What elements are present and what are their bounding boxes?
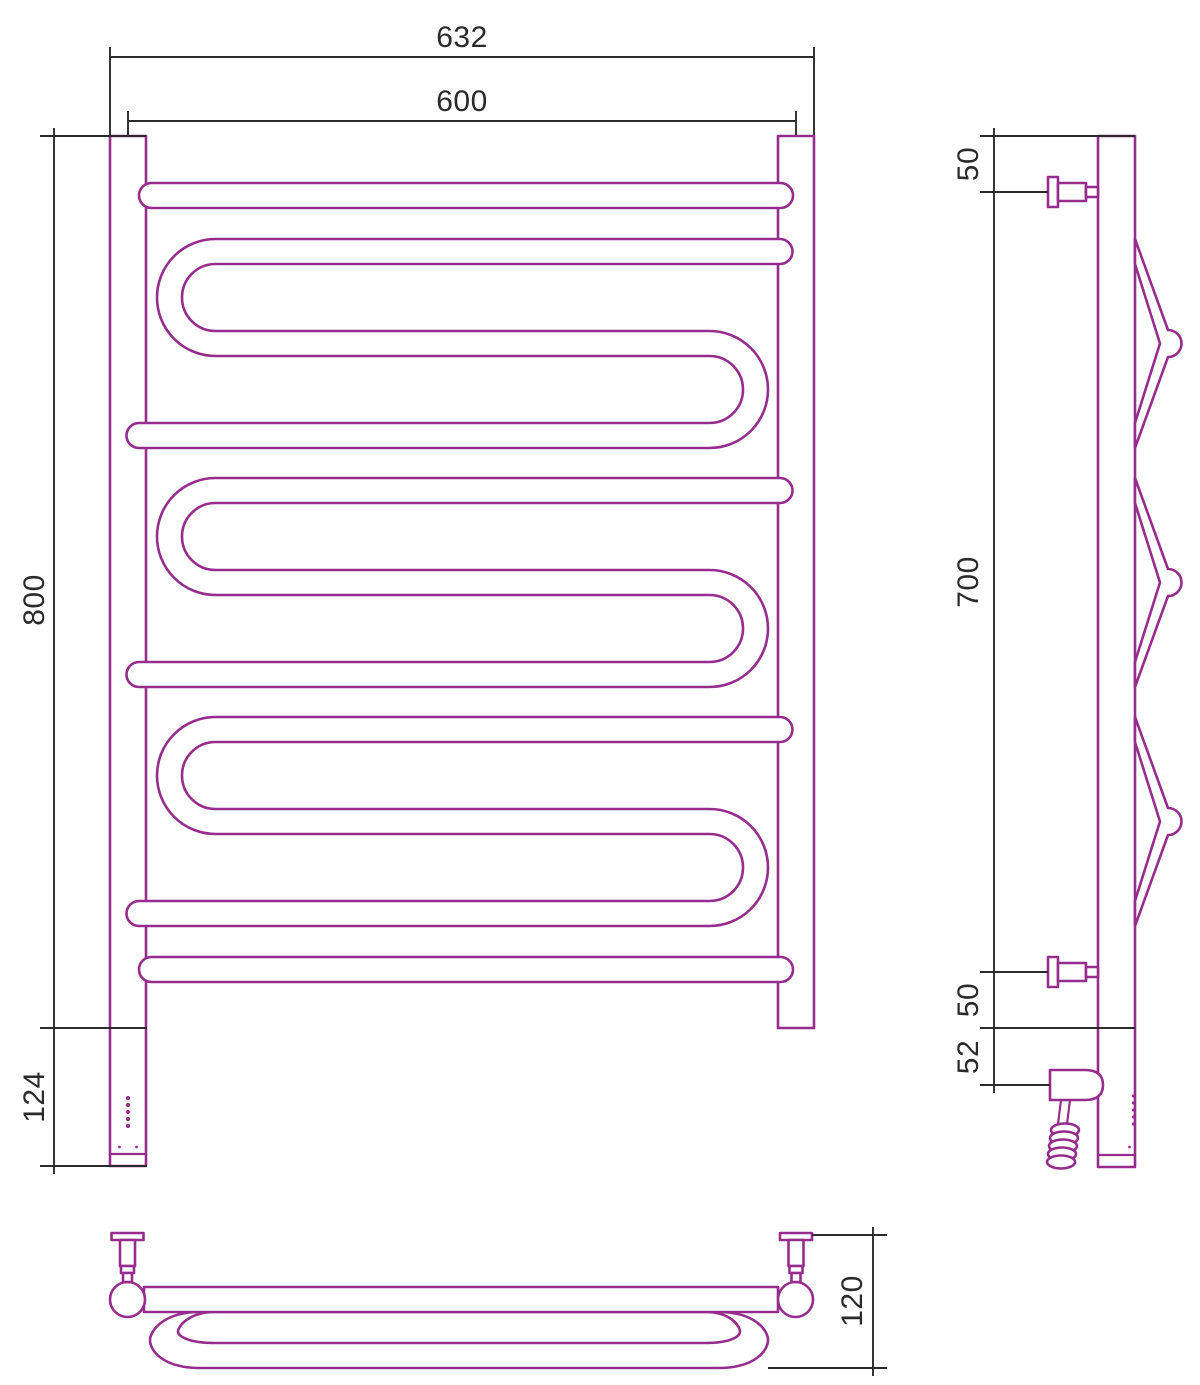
power-cord xyxy=(1047,1100,1079,1169)
plan-view: 120 xyxy=(110,1227,887,1376)
dim-label-50-top: 50 xyxy=(952,147,985,181)
front-rail-top xyxy=(139,183,793,208)
side-bracket-bottom xyxy=(1048,957,1098,987)
side-post-bar xyxy=(1098,136,1135,1167)
front-coil-3 xyxy=(127,717,793,926)
front-post-left xyxy=(110,136,146,1166)
front-structure xyxy=(110,136,814,1166)
side-electric-box xyxy=(1050,1070,1103,1100)
dim-label-124: 124 xyxy=(18,1071,51,1123)
plan-rail-tube xyxy=(144,1287,778,1312)
side-coil-1 xyxy=(1135,239,1182,448)
plan-coil-loop-inner xyxy=(178,1312,740,1343)
front-rail-bottom xyxy=(139,957,793,982)
side-bracket-top xyxy=(1048,177,1098,207)
plan-bracket-left xyxy=(112,1233,144,1282)
dim-label-632: 632 xyxy=(436,21,488,54)
front-coil-1 xyxy=(127,239,793,448)
side-view: 50 700 50 52 xyxy=(952,128,1182,1169)
drawing-canvas: 632 600 800 124 xyxy=(0,0,1200,1385)
dim-label-52: 52 xyxy=(952,1040,985,1074)
side-coil-3 xyxy=(1135,717,1182,926)
front-view: 632 600 800 124 xyxy=(18,21,814,1174)
front-coil-2 xyxy=(127,478,793,687)
towel-rail-drawing: 632 600 800 124 xyxy=(0,0,1200,1385)
dim-label-120: 120 xyxy=(836,1275,869,1327)
dim-label-800: 800 xyxy=(18,574,51,626)
plan-post-left-section xyxy=(110,1282,145,1317)
plan-post-right-section xyxy=(778,1282,813,1317)
front-post-right xyxy=(778,136,814,1028)
dim-label-50-bottom: 50 xyxy=(952,983,985,1017)
side-coil-2 xyxy=(1135,478,1182,687)
dim-label-600: 600 xyxy=(436,85,488,118)
dim-label-700: 700 xyxy=(952,556,985,608)
plan-bracket-right xyxy=(780,1233,812,1282)
side-structure xyxy=(1047,136,1182,1169)
plan-structure xyxy=(110,1233,813,1368)
